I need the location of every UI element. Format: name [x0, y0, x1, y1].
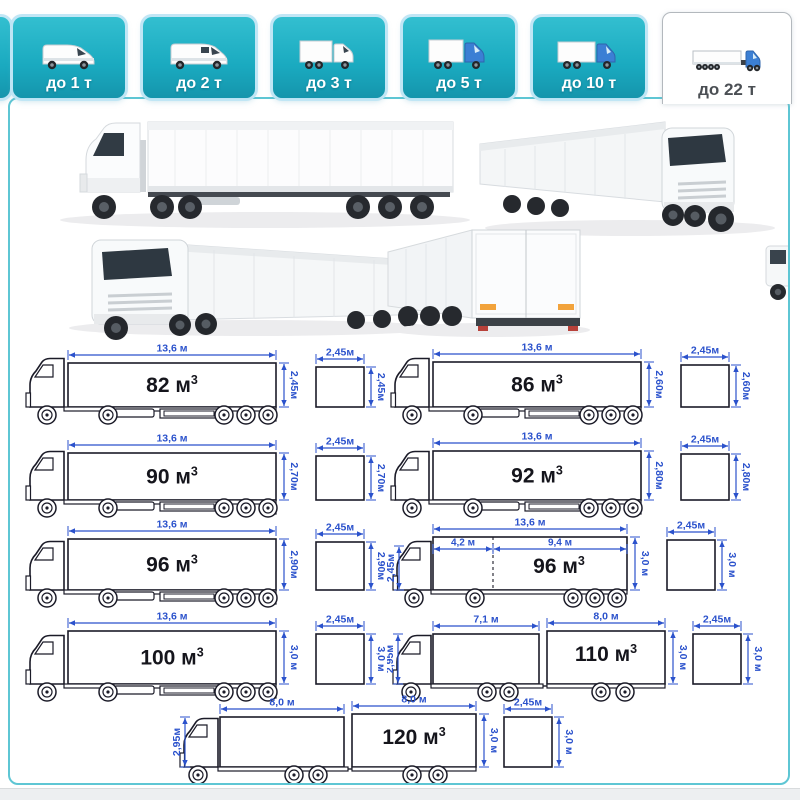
svg-text:7,1 м: 7,1 м [473, 614, 499, 626]
tab-up-to-3t[interactable]: до 3 т [273, 17, 385, 98]
box-truck-blue-long-icon [557, 32, 621, 72]
semi-truck-rear-quarter-photo [380, 218, 600, 340]
tab-up-to-10t[interactable]: до 10 т [533, 17, 645, 98]
van-small-icon [37, 32, 101, 72]
cargo-diagram-86m3: 13,6 м2,60м86 м32,45м2,60м [387, 333, 751, 430]
svg-text:2,45м: 2,45м [326, 347, 354, 359]
tab-label: до 5 т [436, 75, 482, 93]
svg-text:8,0 м: 8,0 м [269, 697, 295, 709]
svg-text:2,45м: 2,45м [514, 697, 542, 709]
svg-text:2,45м: 2,45м [288, 371, 300, 399]
svg-text:3,0 м: 3,0 м [677, 645, 689, 671]
svg-text:2,45м: 2,45м [375, 373, 386, 401]
tab-up-to-5t[interactable]: до 5 т [403, 17, 515, 98]
svg-text:2,60м: 2,60м [740, 372, 751, 400]
svg-text:13,6 м: 13,6 м [156, 519, 187, 531]
svg-text:9,4 м: 9,4 м [548, 538, 572, 549]
svg-text:2,45м: 2,45м [677, 520, 705, 532]
svg-text:2,45м: 2,45м [691, 434, 719, 446]
tab-label: до 3 т [306, 75, 352, 93]
svg-text:8,0 м: 8,0 м [593, 611, 619, 623]
svg-text:92 м3: 92 м3 [511, 464, 563, 488]
svg-text:2,70м: 2,70м [288, 462, 300, 490]
svg-text:3,0 м: 3,0 м [375, 646, 386, 672]
svg-text:13,6 м: 13,6 м [521, 342, 552, 354]
svg-text:2,45м: 2,45м [326, 522, 354, 534]
footer-strip [0, 788, 800, 800]
tab-up-to-22t-selected[interactable]: до 22 т [662, 12, 792, 104]
svg-text:3,0 м: 3,0 м [488, 728, 500, 754]
svg-text:2,95м: 2,95м [171, 728, 183, 756]
tab-label: до 1 т [46, 75, 92, 93]
cargo-diagram-92m3: 13,6 м2,80м92 м32,45м2,80м [387, 426, 751, 523]
cargo-diagram-82m3: 13,6 м2,45м82 м32,45м2,45м [22, 333, 386, 430]
van-large-icon [167, 32, 231, 72]
content-panel: 13,6 м2,45м82 м32,45м2,45м 13,6 м2,60м86… [8, 97, 790, 785]
box-truck-blue-icon [427, 32, 491, 72]
svg-text:96 м3: 96 м3 [146, 553, 198, 577]
tab-label: до 22 т [698, 81, 756, 99]
svg-text:2,60м: 2,60м [653, 370, 665, 398]
svg-text:2,45м: 2,45м [691, 345, 719, 357]
svg-text:2,95м: 2,95м [387, 645, 396, 673]
svg-text:2,45м: 2,45м [326, 614, 354, 626]
svg-text:96 м3: 96 м3 [533, 554, 585, 578]
svg-text:2,45м: 2,45м [387, 554, 397, 582]
semi-truck-side-view-photo [30, 112, 470, 234]
svg-text:82 м3: 82 м3 [146, 373, 198, 397]
svg-text:3,0 м: 3,0 м [563, 729, 575, 755]
svg-text:120 м3: 120 м3 [382, 725, 445, 749]
svg-text:13,6 м: 13,6 м [514, 517, 545, 529]
svg-text:13,6 м: 13,6 м [156, 343, 187, 355]
svg-text:3,0 м: 3,0 м [288, 645, 300, 671]
svg-text:13,6 м: 13,6 м [156, 433, 187, 445]
semi-truck-icon [691, 38, 763, 78]
tab-label: до 2 т [176, 75, 222, 93]
tab-up-to-1t[interactable]: до 1 т [13, 17, 125, 98]
svg-text:90 м3: 90 м3 [146, 465, 198, 489]
tab-label: до 10 т [562, 75, 616, 93]
svg-text:8,0 м: 8,0 м [401, 694, 427, 706]
svg-text:2,90м: 2,90м [375, 552, 386, 580]
box-truck-white-icon [297, 32, 361, 72]
svg-text:2,80м: 2,80м [653, 461, 665, 489]
tab-up-to-2t[interactable]: до 2 т [143, 17, 255, 98]
svg-text:2,70м: 2,70м [375, 464, 386, 492]
svg-text:110 м3: 110 м3 [575, 642, 637, 666]
svg-text:13,6 м: 13,6 м [156, 611, 187, 623]
tab-partial-offscreen[interactable] [0, 17, 10, 98]
svg-text:100 м3: 100 м3 [140, 646, 203, 670]
svg-text:2,45м: 2,45м [326, 436, 354, 448]
svg-text:2,90м: 2,90м [288, 550, 300, 578]
svg-text:3,0 м: 3,0 м [639, 551, 651, 577]
truck-cab-fragment [764, 240, 790, 302]
svg-text:2,80м: 2,80м [740, 463, 751, 491]
cargo-diagram-96m3: 13,6 м2,90м96 м32,45м2,90м [22, 516, 386, 613]
svg-text:2,45м: 2,45м [703, 614, 731, 626]
svg-text:3,0 м: 3,0 м [726, 552, 738, 578]
svg-text:4,2 м: 4,2 м [451, 538, 475, 549]
svg-text:13,6 м: 13,6 м [521, 431, 552, 443]
cargo-diagram-96m3-jumbo: 13,6 м4,2 м9,4 м3,0 м2,45м96 м32,45м3,0 … [387, 516, 739, 613]
cargo-diagram-120m3: 8,0 м8,0 м3,0 м2,95м120 м32,45м3,0 м [170, 693, 580, 785]
cargo-diagram-90m3: 13,6 м2,70м90 м32,45м2,70м [22, 426, 386, 523]
svg-text:3,0 м: 3,0 м [752, 646, 764, 672]
svg-text:86 м3: 86 м3 [511, 373, 563, 397]
